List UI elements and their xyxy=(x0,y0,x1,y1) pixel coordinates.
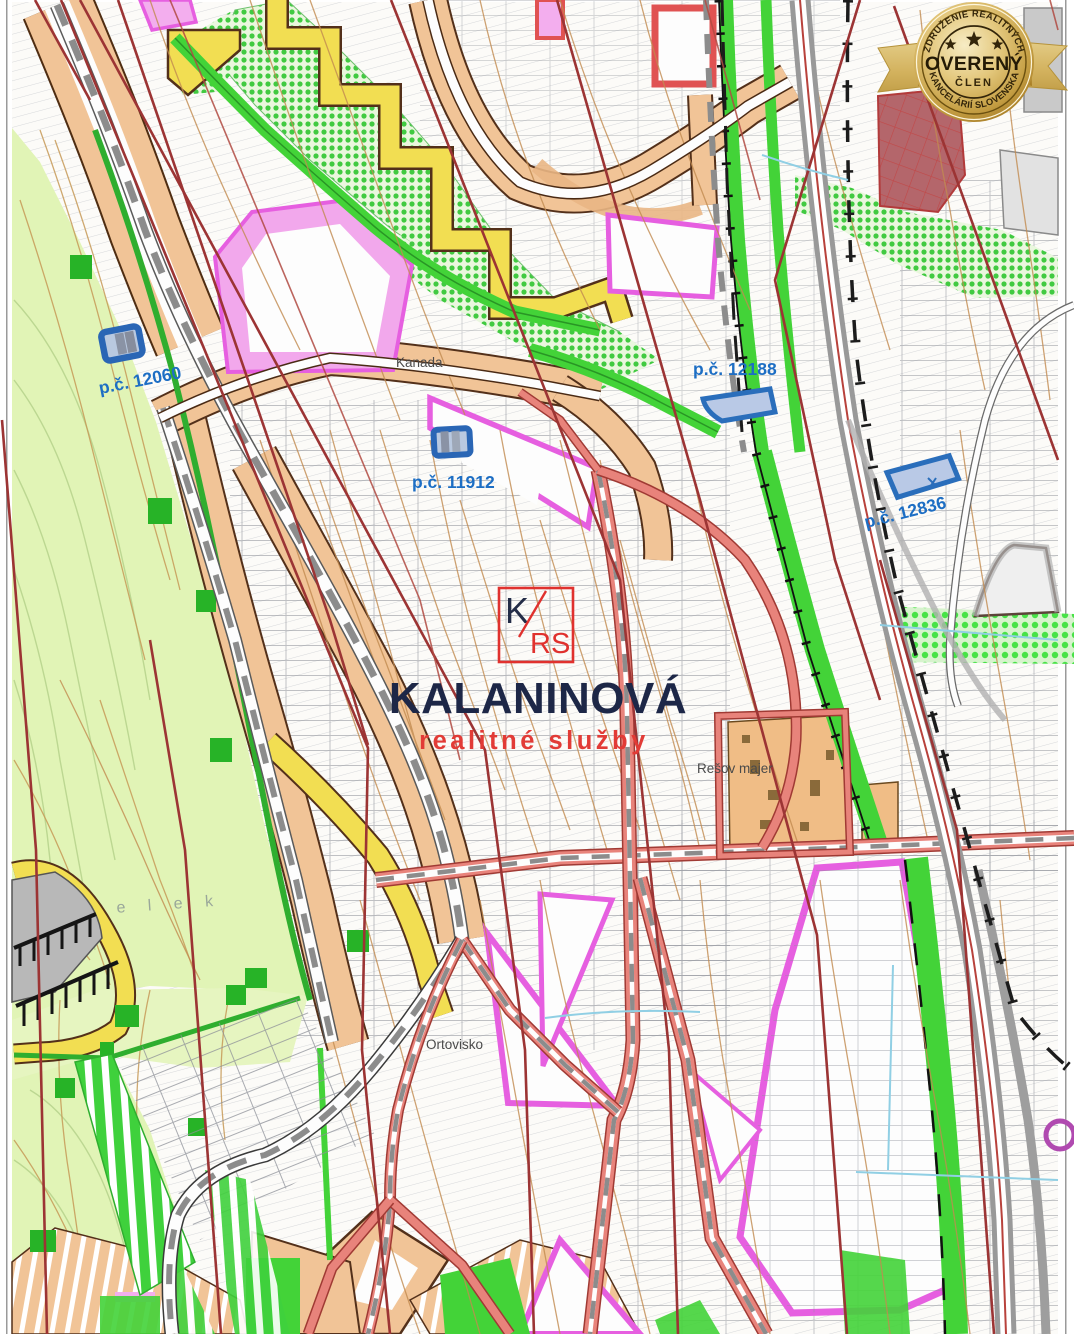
svg-text:ČLEN: ČLEN xyxy=(955,76,993,89)
svg-text:Rešov majer: Rešov majer xyxy=(697,761,773,776)
svg-text:OVERENÝ: OVERENÝ xyxy=(925,51,1023,75)
svg-text:Kanada: Kanada xyxy=(396,355,443,370)
svg-text:p.č. 12188: p.č. 12188 xyxy=(693,359,777,379)
svg-text:Ortovisko: Ortovisko xyxy=(426,1037,483,1052)
svg-text:realitné služby: realitné služby xyxy=(419,727,649,755)
svg-text:p.č. 11912: p.č. 11912 xyxy=(412,472,495,492)
svg-text:KALANINOVÁ: KALANINOVÁ xyxy=(389,673,687,723)
svg-text:RS: RS xyxy=(530,628,570,660)
